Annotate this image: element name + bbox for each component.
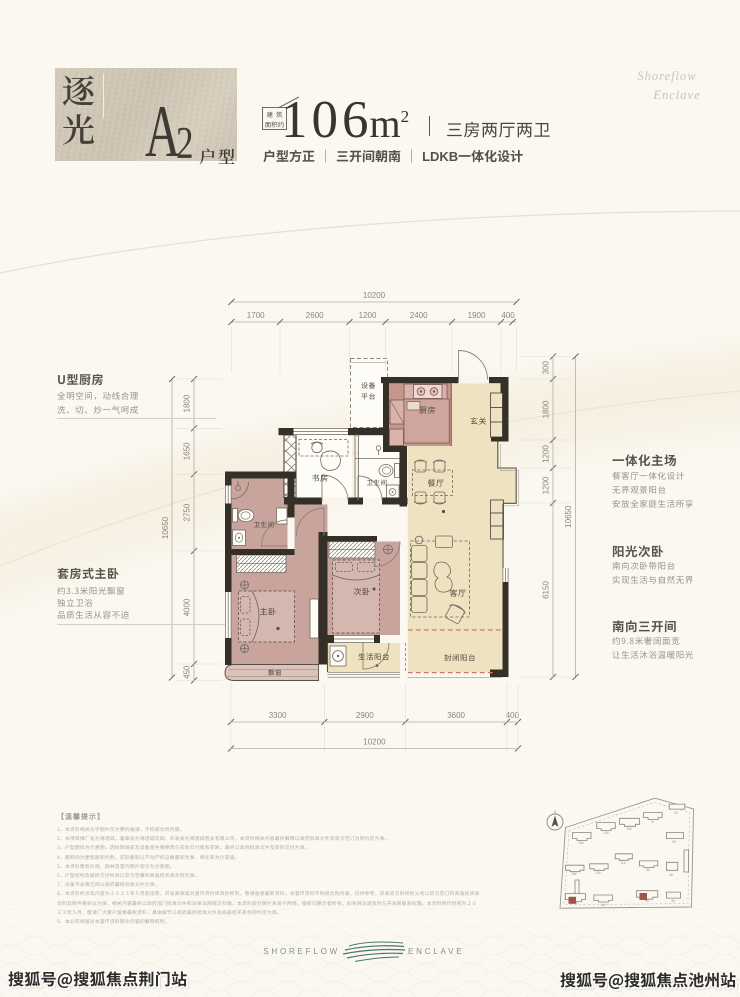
svg-text:飘窗: 飘窗: [268, 667, 282, 677]
svg-text:书房: 书房: [312, 473, 329, 484]
svg-text:2600: 2600: [306, 311, 324, 320]
svg-text:3#: 3#: [674, 811, 678, 815]
svg-text:400: 400: [501, 311, 515, 320]
svg-text:13#: 13#: [595, 871, 601, 875]
svg-text:10#: 10#: [626, 827, 632, 831]
svg-text:1650: 1650: [183, 442, 192, 460]
svg-text:2400: 2400: [410, 311, 428, 320]
svg-text:4000: 4000: [183, 598, 192, 616]
svg-text:400: 400: [506, 711, 520, 720]
svg-text:2900: 2900: [356, 711, 374, 720]
svg-text:6150: 6150: [542, 581, 551, 599]
svg-text:15#: 15#: [578, 841, 584, 845]
svg-text:1800: 1800: [542, 400, 551, 418]
svg-text:设备: 设备: [361, 381, 376, 391]
svg-text:10200: 10200: [363, 738, 386, 747]
svg-text:16#: 16#: [571, 872, 577, 876]
svg-text:10650: 10650: [564, 505, 573, 528]
svg-text:次卧: 次卧: [354, 587, 371, 598]
svg-text:2750: 2750: [183, 503, 192, 521]
svg-text:1200: 1200: [542, 445, 551, 463]
svg-text:14#: 14#: [600, 903, 606, 907]
svg-text:5#: 5#: [672, 840, 676, 844]
svg-text:玄关: 玄关: [470, 416, 487, 427]
svg-text:卫生间: 卫生间: [367, 477, 388, 487]
svg-text:封闭阳台: 封闭阳台: [444, 653, 476, 664]
svg-text:6#: 6#: [669, 873, 673, 877]
svg-text:主卧: 主卧: [260, 607, 277, 618]
svg-text:平台: 平台: [361, 392, 376, 402]
svg-text:生活阳台: 生活阳台: [358, 652, 390, 663]
svg-text:10650: 10650: [161, 516, 170, 539]
svg-text:1900: 1900: [468, 311, 486, 320]
svg-text:1800: 1800: [183, 394, 192, 412]
svg-text:7#: 7#: [650, 820, 654, 824]
svg-text:12#: 12#: [603, 831, 609, 835]
svg-text:客厅: 客厅: [450, 588, 467, 599]
svg-text:1200: 1200: [542, 476, 551, 494]
svg-text:4#: 4#: [671, 899, 675, 903]
svg-text:1200: 1200: [359, 311, 377, 320]
svg-text:厨房: 厨房: [419, 405, 436, 416]
svg-text:300: 300: [542, 360, 551, 374]
svg-text:8#: 8#: [646, 868, 650, 872]
svg-text:1700: 1700: [247, 311, 265, 320]
svg-text:3600: 3600: [447, 711, 465, 720]
svg-text:餐厅: 餐厅: [428, 478, 445, 489]
svg-text:10200: 10200: [363, 291, 386, 300]
svg-text:卫生间: 卫生间: [254, 519, 275, 529]
svg-text:3300: 3300: [269, 711, 287, 720]
svg-text:11#: 11#: [620, 861, 625, 865]
svg-text:450: 450: [183, 665, 192, 679]
